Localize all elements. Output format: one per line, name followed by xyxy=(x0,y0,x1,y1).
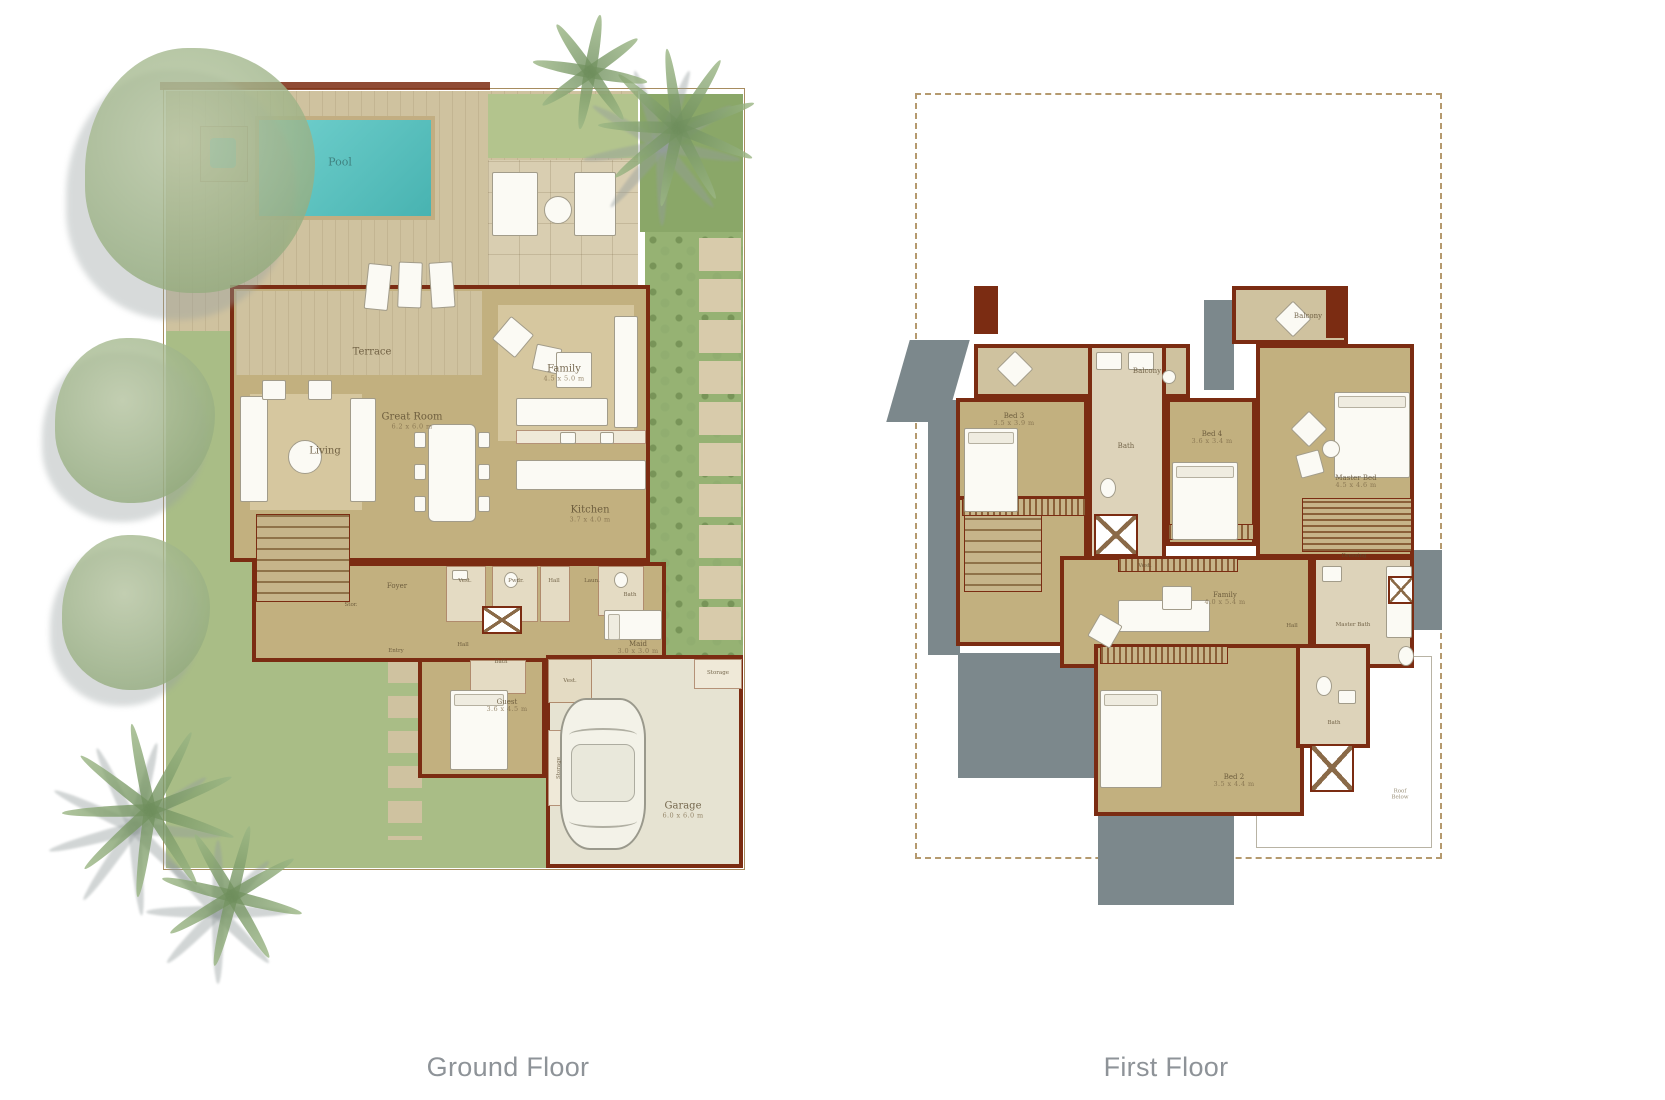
bath-basin xyxy=(1338,690,1356,704)
staircase-ff xyxy=(964,506,1042,592)
outdoor-table xyxy=(544,196,572,224)
building-shadow xyxy=(1204,300,1234,390)
room-label-hall-ff: Hall xyxy=(1286,623,1298,629)
room-label-bath-shared: Bath xyxy=(1118,442,1135,450)
dining-chair xyxy=(478,432,490,448)
room-label-master-bed: Master Bed4.5 x 4.6 m xyxy=(1335,474,1376,490)
room-label-great-room: Great Room6.2 x 6.0 m xyxy=(382,412,443,431)
room-label-bath2-ff: Bath xyxy=(1327,720,1340,726)
room-label-garage: Garage6.0 x 6.0 m xyxy=(662,801,703,820)
room-label-living: Living xyxy=(309,445,341,457)
room-label-maid: Maid3.0 x 3.0 m xyxy=(617,640,658,656)
kitchen-counter xyxy=(516,430,646,444)
staircase xyxy=(256,514,350,602)
room-label-balcony-left: Balcony xyxy=(1133,367,1161,375)
room-label-bed4: Bed 43.6 x 3.4 m xyxy=(1191,430,1232,446)
wc xyxy=(1398,646,1414,666)
room-label-vest1: Vest. xyxy=(458,578,472,584)
wc xyxy=(1100,478,1116,498)
dining-chair xyxy=(414,464,426,480)
dressing-wardrobe xyxy=(1302,498,1412,552)
room-label-stor: Stor. xyxy=(344,602,357,608)
room-label-roof-below: Roof Below xyxy=(1387,789,1413,802)
bed3-bed xyxy=(964,428,1018,512)
balcony-table xyxy=(1162,370,1176,384)
sun-lounger xyxy=(364,263,393,311)
wall-stub xyxy=(974,286,998,334)
room-label-bath2: Bath xyxy=(494,659,507,665)
shower xyxy=(1388,576,1414,604)
bath-basin xyxy=(1322,566,1342,582)
room-label-dressing: Dressing xyxy=(1342,553,1367,559)
car xyxy=(560,698,646,850)
room-label-guest: Guest3.6 x 4.5 m xyxy=(486,698,527,714)
boundary-wall xyxy=(160,82,490,90)
room-label-bed3: Bed 33.5 x 3.9 m xyxy=(993,412,1034,428)
room-label-pool: Pool xyxy=(328,157,352,170)
room-label-hall1: Hall xyxy=(548,578,560,584)
dining-chair xyxy=(478,496,490,512)
floorplan-page: Pool Terrace Family4.5 x 5.0 m Living Gr… xyxy=(0,0,1665,1100)
maid-bed xyxy=(604,610,662,640)
room-label-master-bath: Master Bath xyxy=(1335,622,1371,628)
master-side-table xyxy=(1322,440,1340,458)
spa-water xyxy=(210,138,236,168)
room-label-bed2: Bed 23.5 x 4.4 m xyxy=(1213,773,1254,789)
living-armchair xyxy=(262,380,286,400)
dining-chair xyxy=(414,432,426,448)
paver-path-right xyxy=(699,238,741,648)
building-shadow xyxy=(1414,550,1442,630)
wall-stub xyxy=(1326,286,1346,338)
ground-floor-caption: Ground Floor xyxy=(427,1052,590,1083)
room-label-terrace: Terrace xyxy=(353,346,392,358)
room-label-powder: Pwdr. xyxy=(508,578,524,584)
master-bed-bed xyxy=(1334,392,1410,478)
room-label-storage-nook: Storage xyxy=(707,670,729,676)
kitchen-sink xyxy=(600,432,614,444)
dining-chair xyxy=(478,464,490,480)
room-label-kitchen: Kitchen3.7 x 4.0 m xyxy=(569,505,610,524)
outdoor-sofa xyxy=(492,172,538,236)
room-label-foyer: Foyer xyxy=(387,582,407,590)
family-sofa xyxy=(516,398,608,426)
room-label-laundry: Laun. xyxy=(584,578,600,584)
bed4-bed xyxy=(1172,462,1238,540)
bath-basin xyxy=(1096,352,1122,370)
bed2-bed xyxy=(1100,690,1162,788)
family-sofa xyxy=(614,316,638,428)
first-floor-plan: Balcony Balcony Bed 33.5 x 3.9 m Bath Be… xyxy=(830,0,1665,1000)
sun-lounger xyxy=(397,262,423,309)
ground-floor-plan: Pool Terrace Family4.5 x 5.0 m Living Gr… xyxy=(0,0,830,1000)
room-label-balcony-right: Balcony xyxy=(1294,312,1322,320)
room-label-vest-ff: Vest. xyxy=(1138,563,1152,569)
building-shadow xyxy=(958,653,1098,778)
room-label-bath1: Bath xyxy=(623,592,636,598)
room-label-entry: Entry xyxy=(388,648,404,654)
living-armchair xyxy=(308,380,332,400)
kitchen-stove xyxy=(560,432,576,444)
wardrobe-bed2 xyxy=(1100,646,1228,664)
living-sofa xyxy=(240,396,268,502)
shower xyxy=(1094,514,1138,556)
living-sofa xyxy=(350,398,376,502)
bath2-block xyxy=(1296,644,1370,748)
wardrobe-family xyxy=(1118,558,1238,572)
room-label-vest2: Vest. xyxy=(563,678,577,684)
room-label-hall2: Hall xyxy=(457,642,469,648)
family-table-ff xyxy=(1162,586,1192,610)
wc xyxy=(614,572,628,588)
shower xyxy=(1310,744,1354,792)
dining-chair xyxy=(414,496,426,512)
room-label-family-ff: Family4.0 x 5.4 m xyxy=(1204,591,1245,607)
laundry-floor xyxy=(540,566,570,622)
kitchen-island xyxy=(516,460,646,490)
wc xyxy=(1316,676,1332,696)
room-label-family-gf: Family4.5 x 5.0 m xyxy=(543,364,584,383)
dining-table xyxy=(428,424,476,522)
room-label-storage-side: Storage xyxy=(556,757,562,779)
sun-lounger xyxy=(428,261,455,309)
first-floor-caption: First Floor xyxy=(1104,1052,1229,1083)
shower xyxy=(482,606,522,634)
